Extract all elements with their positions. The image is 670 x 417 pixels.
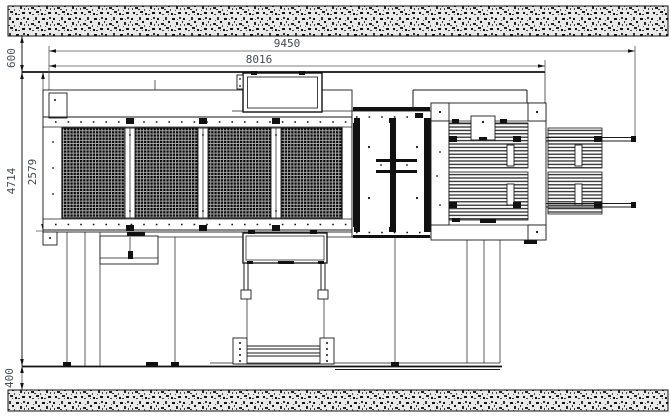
- cad-drawing-viewport: 9450 8016 600 4714 2579 400: [0, 0, 670, 417]
- dimension-bottom-clearance: 400: [3, 366, 24, 390]
- mesh-panel-3: [208, 128, 271, 218]
- dim-label-frame-length: 8016: [246, 53, 273, 66]
- mesh-panel-4: [281, 128, 342, 218]
- cross-door-unit: [352, 107, 437, 238]
- dim-label-bottom-clearance: 400: [3, 368, 16, 388]
- dimension-frame-length: 8016: [49, 53, 545, 72]
- bottom-wall: [8, 390, 668, 411]
- dimension-top-clearance: 600: [5, 36, 24, 72]
- screen-unit: [43, 71, 352, 245]
- hopper: [237, 71, 322, 112]
- left-under-box: [100, 232, 158, 264]
- base-plate-assembly: [233, 338, 334, 364]
- mesh-panel-1: [62, 128, 125, 218]
- dim-label-overall-width: 4714: [5, 167, 18, 194]
- top-wall: [8, 6, 668, 36]
- dimension-overall-width: 4714: [5, 72, 24, 366]
- discharge-chute: [241, 230, 328, 338]
- dim-label-screen-width: 2579: [26, 159, 39, 186]
- mesh-panel-2: [135, 128, 198, 218]
- cad-drawing: 9450 8016 600 4714 2579 400: [0, 0, 670, 417]
- dim-label-overall-length: 9450: [274, 37, 301, 50]
- dim-label-top-clearance: 600: [5, 48, 18, 68]
- roller-frame-unit: [431, 103, 546, 244]
